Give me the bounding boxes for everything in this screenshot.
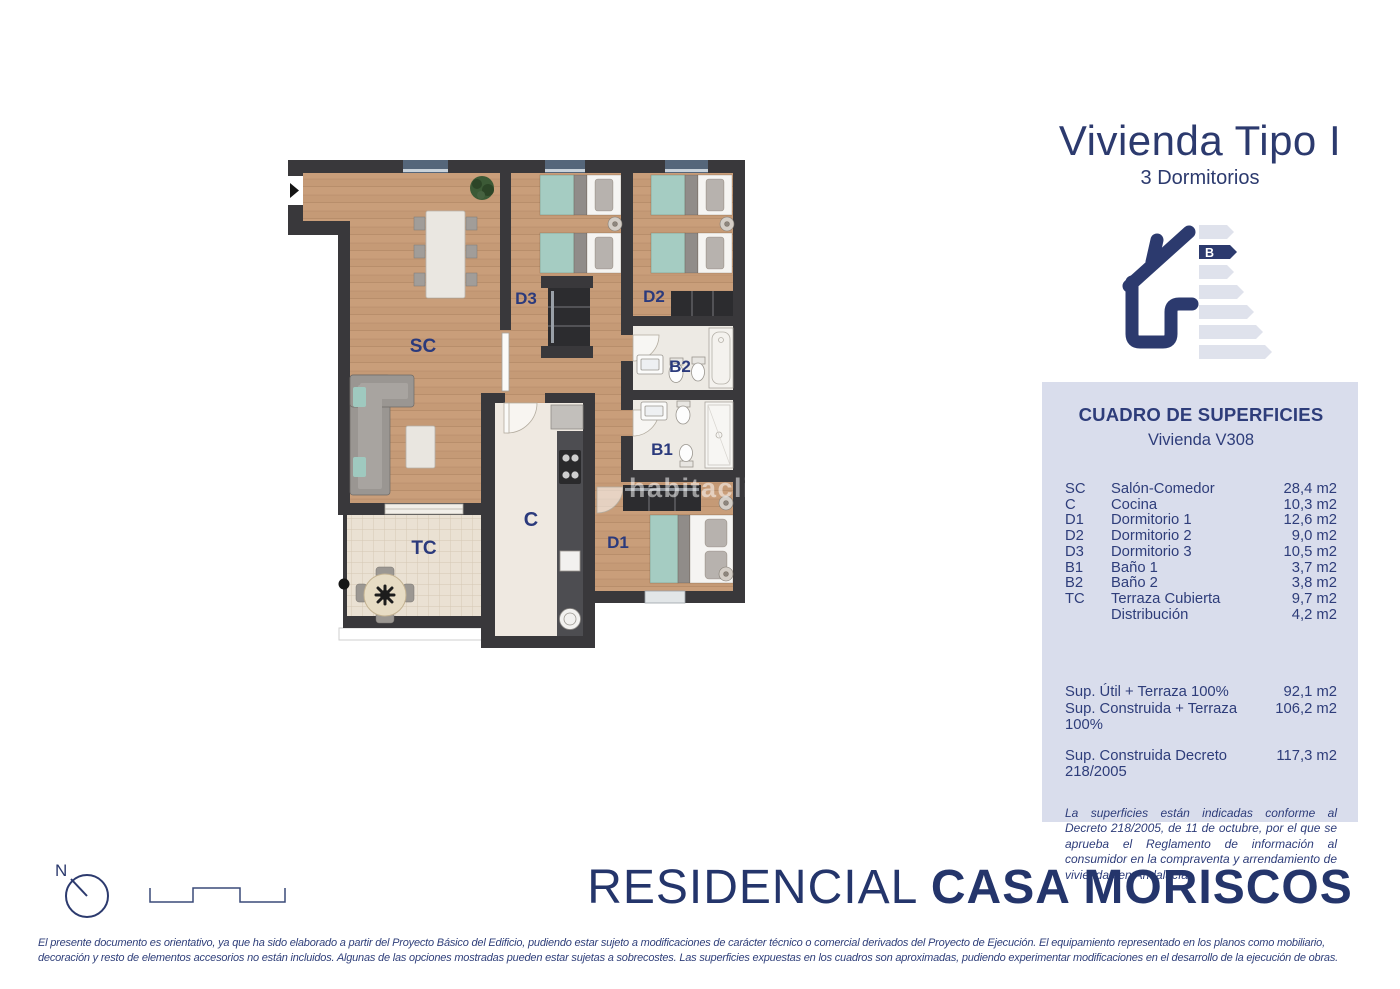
room-label-d2: D2 (643, 287, 665, 306)
energy-house-icon (1129, 232, 1192, 342)
title-block: Vivienda Tipo I 3 Dormitorios (1042, 118, 1358, 190)
table-row: B1Baño 13,7 m2 (1065, 561, 1337, 577)
energy-scale-bars: B (1199, 225, 1272, 359)
compass-north-label: N (55, 861, 67, 880)
surfaces-panel-subtitle: Vivienda V308 (1065, 431, 1337, 450)
room-label-tc: TC (411, 538, 437, 559)
disclaimer-line-1: El presente documento es orientativo, ya… (38, 936, 1368, 951)
brand-bold-part: CASA MORISCOS (931, 861, 1353, 914)
energy-rating-letter: B (1205, 246, 1214, 260)
room-label-c: C (524, 509, 538, 531)
coffee-table-icon (406, 426, 435, 468)
table-row: D2Dormitorio 29,0 m2 (1065, 529, 1337, 545)
room-label-d1: D1 (607, 533, 629, 552)
surfaces-totals: Sup. Útil + Terraza 100%92,1 m2 Sup. Con… (1065, 684, 1337, 781)
dining-table-icon (414, 211, 477, 298)
total-row: Sup. Construida + Terraza 100%106,2 m2 (1065, 701, 1337, 734)
compass-keyplan: N (35, 850, 315, 925)
table-row: SCSalón-Comedor28,4 m2 (1065, 482, 1337, 498)
room-label-b2: B2 (669, 357, 691, 376)
entrance-door-icon (288, 176, 303, 205)
energy-rating-icon: B (1105, 218, 1305, 368)
plant-icon (470, 176, 494, 200)
table-row: CCocina10,3 m2 (1065, 498, 1337, 514)
building-keyplan-icon (150, 888, 285, 902)
page-subtitle: 3 Dormitorios (1042, 166, 1358, 190)
table-row: B2Baño 23,8 m2 (1065, 576, 1337, 592)
terrace-ledge (339, 628, 483, 640)
surfaces-table: SCSalón-Comedor28,4 m2 CCocina10,3 m2 D1… (1065, 482, 1337, 623)
residence-brand: RESIDENCIAL CASA MORISCOS (560, 860, 1380, 915)
room-label-sc: SC (410, 336, 437, 357)
surfaces-panel: CUADRO DE SUPERFICIES Vivienda V308 SCSa… (1042, 382, 1358, 822)
brand-light-part: RESIDENCIAL (587, 861, 931, 914)
total-row: Sup. Útil + Terraza 100%92,1 m2 (1065, 684, 1337, 701)
legal-disclaimer: El presente documento es orientativo, ya… (38, 936, 1368, 966)
north-compass-icon: N (55, 861, 108, 917)
disclaimer-line-2: decoración y resto de elementos accesori… (38, 951, 1368, 966)
room-label-b1: B1 (651, 440, 673, 459)
floorplan-document-page: Vivienda Tipo I 3 Dormitorios B CUAD (0, 0, 1400, 989)
table-row: D1Dormitorio 112,6 m2 (1065, 513, 1337, 529)
table-row: D3Dormitorio 310,5 m2 (1065, 545, 1337, 561)
floor-plan: SC D3 D2 B2 B1 C D1 TC habitaclia (285, 155, 755, 655)
watermark: habitaclia (629, 473, 769, 503)
page-title: Vivienda Tipo I (1042, 118, 1358, 164)
total-row-decree: Sup. Construida Decreto 218/2005117,3 m2 (1065, 748, 1337, 781)
table-row: TCTerraza Cubierta9,7 m2 (1065, 592, 1337, 608)
room-label-d3: D3 (515, 289, 537, 308)
table-row: Distribución4,2 m2 (1065, 608, 1337, 624)
surfaces-panel-title: CUADRO DE SUPERFICIES (1065, 404, 1337, 426)
